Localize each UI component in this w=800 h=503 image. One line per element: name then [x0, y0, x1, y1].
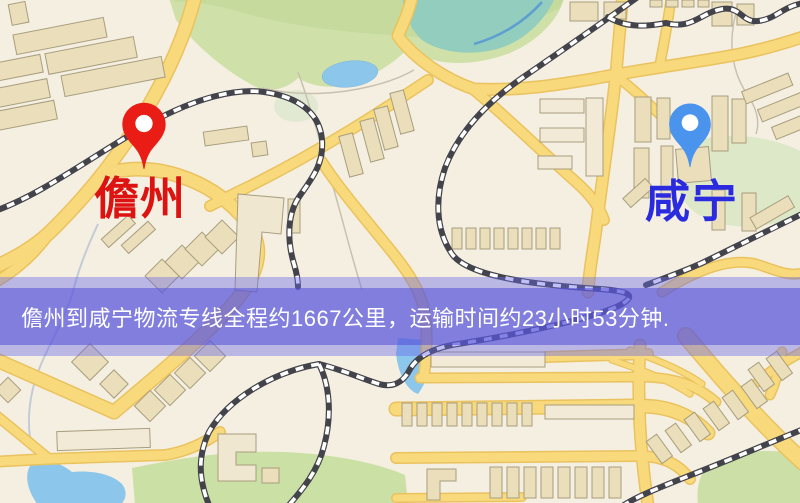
destination-pin-icon: [665, 101, 715, 171]
destination-pin-shape: [669, 104, 711, 168]
route-info-banner: 儋州到咸宁物流专线全程约1667公里，运输时间约23小时53分钟.: [0, 288, 800, 345]
route-info-text: 儋州到咸宁物流专线全程约1667公里，运输时间约23小时53分钟.: [0, 301, 670, 333]
origin-city-label: 儋州: [94, 176, 186, 221]
origin-pin-shape: [122, 103, 165, 169]
origin-pin-hole: [135, 115, 152, 132]
map-screenshot: 儋州 咸宁 儋州到咸宁物流专线全程约1667公里，运输时间约23小时53分钟.: [0, 0, 800, 503]
destination-pin-hole: [682, 114, 699, 131]
destination-city-label: 咸宁: [645, 179, 739, 224]
origin-marker[interactable]: [118, 100, 170, 173]
destination-marker[interactable]: [665, 101, 715, 171]
origin-pin-icon: [118, 100, 170, 173]
map-canvas[interactable]: [0, 0, 800, 503]
